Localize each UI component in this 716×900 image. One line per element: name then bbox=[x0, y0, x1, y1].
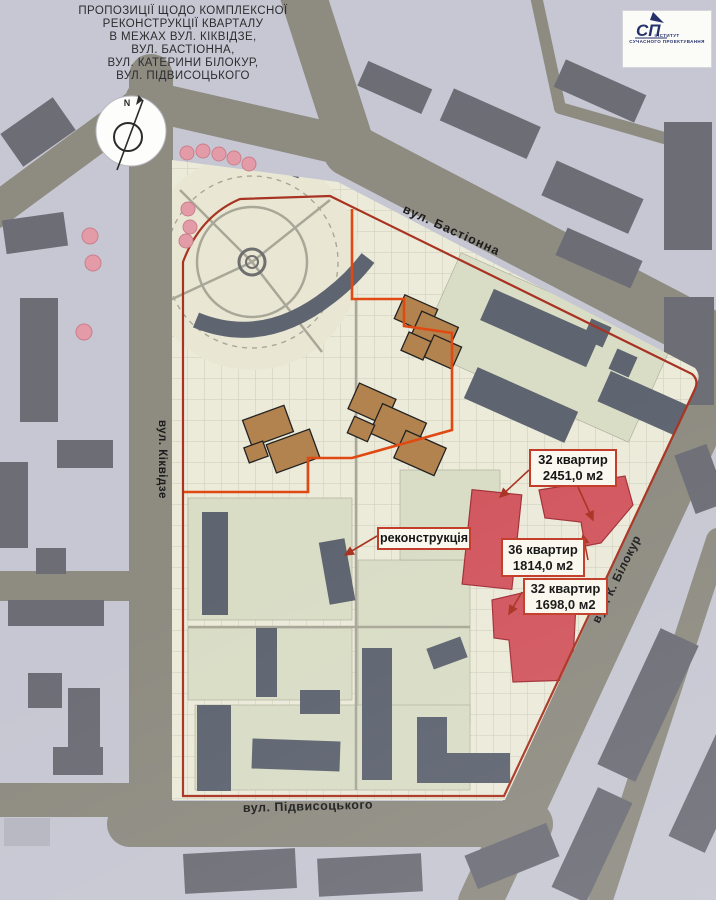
annotation-line: 2451,0 м2 bbox=[531, 468, 615, 484]
title-line: РЕКОНСТРУКЦІЇ КВАРТАЛУ bbox=[8, 18, 358, 31]
annotation-line: 1698,0 м2 bbox=[525, 597, 606, 613]
logo-mark: СП bbox=[623, 11, 677, 41]
title-line: ВУЛ. КАТЕРИНИ БІЛОКУР, bbox=[8, 57, 358, 70]
title-line: ВУЛ. ПІДВИСОЦЬКОГО bbox=[8, 70, 358, 83]
site-plan-sheet: N вул. Бастіонна вул. Кіквідзе вул. К. Б… bbox=[0, 0, 716, 900]
annotation-box-2451: 32 квартир 2451,0 м2 bbox=[529, 449, 617, 487]
annotation-line: реконструкція bbox=[379, 529, 469, 548]
annotation-line: 1814,0 м2 bbox=[503, 558, 583, 574]
annotation-box-1814: 36 квартир 1814,0 м2 bbox=[501, 538, 585, 577]
annotation-line: 36 квартир bbox=[503, 542, 583, 558]
logo-monogram: СП bbox=[636, 21, 661, 40]
sheet-title: ПРОПОЗИЦІЇ ЩОДО КОМПЛЕКСНОЇ РЕКОНСТРУКЦІ… bbox=[8, 5, 358, 83]
institute-logo: СП ІНСТИТУТ СУЧАСНОГО ПРОЕКТУВАННЯ bbox=[622, 10, 712, 68]
title-line: ВУЛ. БАСТІОННА, bbox=[8, 44, 358, 57]
annotation-line: 32 квартир bbox=[531, 452, 615, 468]
annotation-box-1698: 32 квартир 1698,0 м2 bbox=[523, 578, 608, 615]
title-line: ПРОПОЗИЦІЇ ЩОДО КОМПЛЕКСНОЇ bbox=[8, 5, 358, 18]
title-line: В МЕЖАХ ВУЛ. КІКВІДЗЕ, bbox=[8, 31, 358, 44]
annotation-line: 32 квартир bbox=[525, 581, 606, 597]
compass-north-label: N bbox=[124, 98, 131, 108]
street-label-kikvidze: вул. Кіквідзе bbox=[156, 420, 168, 499]
annotation-box-reconstruction: реконструкція bbox=[377, 527, 471, 550]
